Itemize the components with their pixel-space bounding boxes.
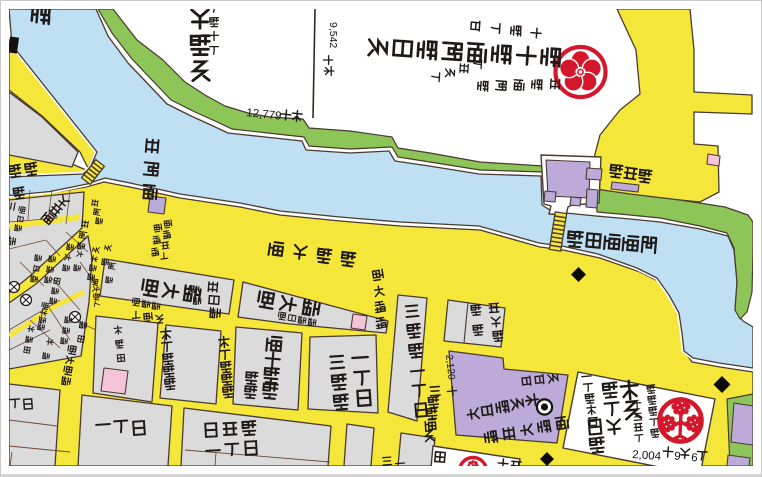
svg-text:9: 9 <box>674 451 681 463</box>
svg-text:9,542: 9,542 <box>327 22 339 48</box>
svg-text:6: 6 <box>691 452 698 464</box>
svg-text:2,004: 2,004 <box>632 449 662 463</box>
